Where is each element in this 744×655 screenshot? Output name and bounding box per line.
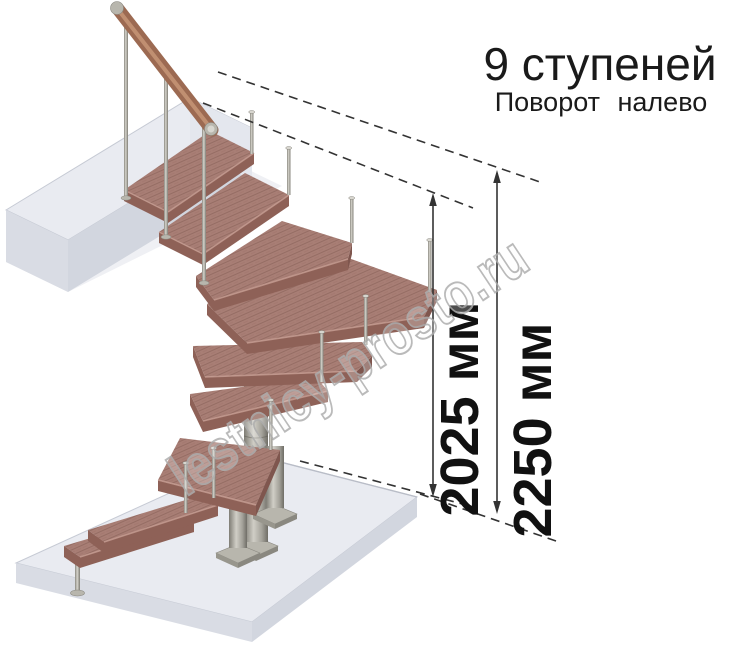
title-turn-direction: Поворот налево: [495, 87, 708, 117]
staircase-diagram: 2025 мм 2250 мм 9 ступеней Поворот налев…: [0, 0, 744, 655]
dimension-outer-label: 2250 мм: [503, 322, 563, 537]
handrail-top-cap: [111, 2, 124, 15]
title-steps-count: 9 ступеней: [483, 38, 716, 90]
diagram-canvas: 2025 мм 2250 мм 9 ступеней Поворот налев…: [0, 0, 744, 655]
title-block: 9 ступеней Поворот налево: [483, 38, 716, 117]
